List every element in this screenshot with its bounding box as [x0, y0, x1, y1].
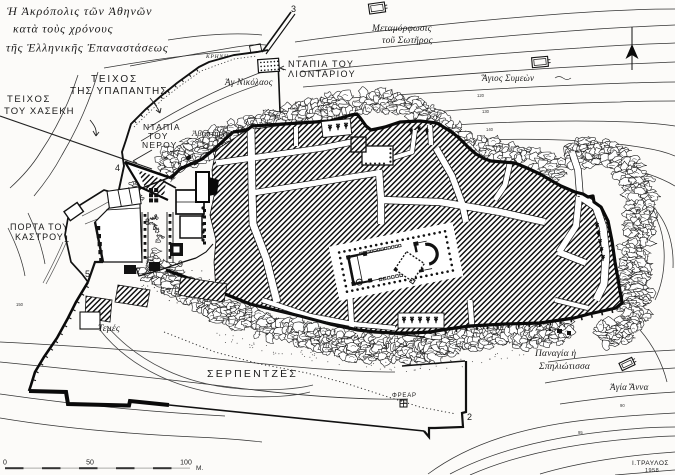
svg-text:2: 2	[467, 412, 472, 422]
svg-text:τῆς Ἑλληνικῆς Ἐπαναστάσεως: τῆς Ἑλληνικῆς Ἐπαναστάσεως	[6, 41, 169, 55]
svg-text:ΠΟΡΤΑ ΤΟΥ: ΠΟΡΤΑ ΤΟΥ	[10, 222, 69, 232]
svg-text:95: 95	[578, 430, 583, 435]
svg-text:5: 5	[85, 269, 90, 279]
svg-text:ΝΕΡΟΥ: ΝΕΡΟΥ	[142, 140, 177, 150]
svg-text:ΛΙΟΝΤΑΡΙΟΥ: ΛΙΟΝΤΑΡΙΟΥ	[288, 69, 356, 79]
svg-text:140: 140	[486, 127, 494, 132]
svg-text:ΤΟΥ ΧΑΣΕΚΗ: ΤΟΥ ΧΑΣΕΚΗ	[4, 106, 75, 117]
svg-text:1958: 1958	[645, 468, 659, 474]
svg-text:130: 130	[482, 109, 490, 114]
svg-text:3: 3	[291, 4, 296, 14]
svg-text:Ἁγία Ἄννα: Ἁγία Ἄννα	[609, 382, 649, 392]
svg-text:9: 9	[178, 259, 183, 269]
svg-text:6: 6	[160, 286, 165, 296]
svg-text:ΤΗΣ ΥΠΑΠΑΝΤΗΣ: ΤΗΣ ΥΠΑΠΑΝΤΗΣ	[70, 86, 168, 97]
svg-text:Ἡ Ἀκρόπολις τῶν Ἀθηνῶν: Ἡ Ἀκρόπολις τῶν Ἀθηνῶν	[7, 4, 152, 18]
svg-text:Μ.: Μ.	[196, 465, 203, 472]
svg-text:Ι.ΤΡΑΥΛΟΣ: Ι.ΤΡΑΥΛΟΣ	[632, 460, 669, 467]
svg-text:8: 8	[145, 217, 150, 227]
svg-text:κατὰ τοὺς χρόνους: κατὰ τοὺς χρόνους	[13, 22, 113, 36]
svg-text:ΚΑΣΤΡΟΥ: ΚΑΣΤΡΟΥ	[15, 232, 64, 242]
svg-text:0: 0	[3, 460, 7, 467]
svg-text:7: 7	[136, 266, 141, 276]
svg-text:150: 150	[16, 302, 24, 307]
svg-text:ΤΕΙΧΟΣ: ΤΕΙΧΟΣ	[7, 94, 51, 105]
svg-text:120: 120	[477, 93, 485, 98]
svg-text:90: 90	[620, 403, 625, 408]
svg-text:ΣΕΡΠΕΝΤΖΕΣ: ΣΕΡΠΕΝΤΖΕΣ	[207, 368, 298, 380]
svg-text:Μεταμόρφωσις: Μεταμόρφωσις	[371, 24, 432, 34]
svg-text:100: 100	[180, 460, 192, 467]
svg-text:1: 1	[64, 234, 69, 244]
svg-text:4: 4	[115, 163, 120, 173]
svg-text:Ἁγ Νικόλαος: Ἁγ Νικόλαος	[224, 77, 273, 87]
svg-text:ΝΤΑΠΙΑ ΤΟΥ: ΝΤΑΠΙΑ ΤΟΥ	[288, 59, 354, 69]
svg-text:Τεμές: Τεμές	[98, 324, 120, 334]
svg-text:Ἅγιος Συμεὼν: Ἅγιος Συμεὼν	[481, 73, 534, 83]
svg-text:50: 50	[86, 460, 94, 467]
svg-text:Σπηλιώτισσα: Σπηλιώτισσα	[538, 362, 591, 372]
svg-text:Παναγία ἡ: Παναγία ἡ	[534, 349, 576, 359]
svg-text:ΦΡΕΑΡ: ΦΡΕΑΡ	[392, 393, 417, 399]
svg-text:ΤΕΙΧΟΣ: ΤΕΙΧΟΣ	[91, 74, 138, 85]
svg-text:ΚΡΗΝΗ: ΚΡΗΝΗ	[205, 54, 229, 60]
svg-text:Ἀβαπτήριον: Ἀβαπτήριον	[191, 128, 234, 138]
svg-text:τοῦ Σωτῆρος: τοῦ Σωτῆρος	[382, 36, 433, 46]
